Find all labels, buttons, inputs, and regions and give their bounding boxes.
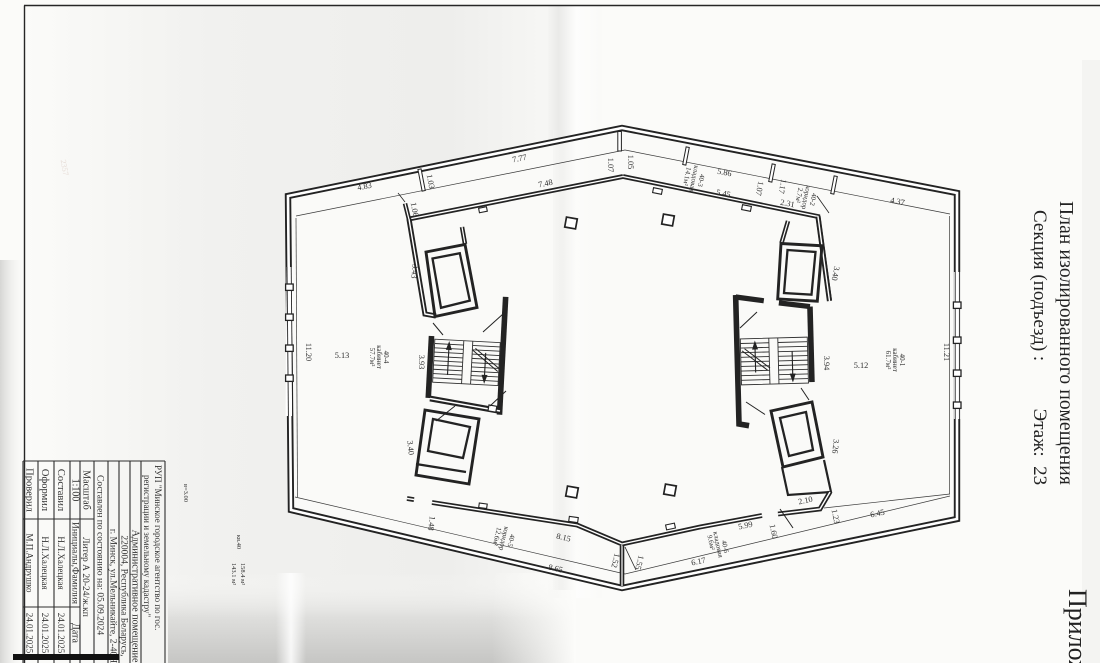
svg-text:1.07: 1.07	[606, 158, 615, 173]
svg-text:11.21: 11.21	[942, 343, 951, 361]
svg-text:5.13: 5.13	[335, 351, 350, 360]
svg-text:61.7м²: 61.7м²	[884, 351, 892, 370]
svg-text:Масштаб: Масштаб	[81, 470, 92, 510]
svg-text:Инициалы,Фамилия: Инициалы,Фамилия	[70, 522, 80, 605]
svg-text:3.40: 3.40	[405, 440, 415, 455]
svg-text:1:100: 1:100	[70, 479, 81, 502]
svg-text:Секция (подъезд) : Эт: Секция (подъезд) : Этаж: 23	[1029, 210, 1050, 485]
svg-text:5.12: 5.12	[854, 361, 869, 370]
svg-text:Дата: Дата	[70, 623, 81, 643]
svg-text:3.94: 3.94	[822, 356, 831, 371]
svg-text:3.93: 3.93	[417, 355, 426, 370]
svg-text:Административное помещение: Административное помещение	[130, 530, 141, 663]
svg-text:Оформил: Оформил	[39, 469, 50, 511]
svg-text:Проверил: Проверил	[24, 468, 35, 512]
svg-text:регистрации и земельному кадас: регистрации и земельному кадастру"	[142, 475, 152, 617]
svg-text:143.1 м²: 143.1 м²	[230, 563, 237, 585]
svg-text:220004, Республика Беларусь,: 220004, Республика Беларусь,	[119, 535, 130, 656]
svg-text:г. Минск, ул.Мельникайте, 2-40: г. Минск, ул.Мельникайте, 2-40Н	[108, 529, 119, 663]
svg-text:в=3.00: в=3.00	[182, 484, 189, 502]
svg-text:158.4 м²: 158.4 м²	[239, 563, 246, 585]
svg-text:Составлен по состоянию на: 05.: Составлен по состоянию на: 05.09.2024	[95, 475, 105, 635]
svg-text:57.7м²: 57.7м²	[368, 348, 376, 367]
svg-text:Литер А 20-24/ж.кп: Литер А 20-24/ж.кп	[80, 537, 90, 617]
svg-text:Приложение: Приложение	[1063, 589, 1092, 663]
svg-text:Н.Л.Халецкая: Н.Л.Халецкая	[40, 536, 50, 589]
svg-text:РУП "Минское городское агентст: РУП "Минское городское агентство по гос.	[153, 465, 163, 630]
svg-text:Н.Л.Халецкая: Н.Л.Халецкая	[56, 536, 66, 589]
svg-text:1.48: 1.48	[426, 516, 437, 532]
svg-text:3.26: 3.26	[830, 439, 840, 454]
svg-text:План изолированного помещения: План изолированного помещения	[1055, 201, 1076, 485]
svg-text:11.20: 11.20	[304, 343, 313, 361]
svg-text:Составил: Составил	[55, 469, 66, 511]
svg-text:3.43: 3.43	[409, 264, 419, 279]
svg-text:24.01.2025: 24.01.2025	[40, 613, 50, 654]
svg-text:М.П.Андрушко: М.П.Андрушко	[25, 533, 35, 593]
svg-text:1.05: 1.05	[626, 155, 635, 170]
svg-text:24.01.2025: 24.01.2025	[56, 613, 66, 654]
svg-text:кв.40: кв.40	[235, 535, 242, 549]
svg-text:24.01.2025: 24.01.2025	[25, 613, 35, 654]
